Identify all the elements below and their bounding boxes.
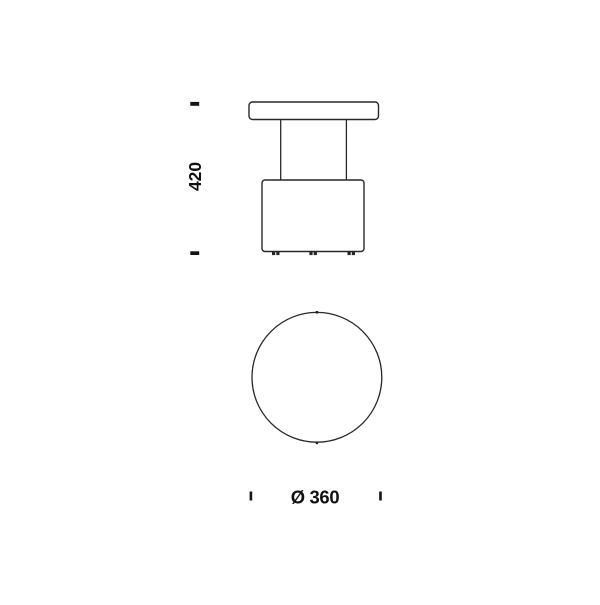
svg-text:Ø 360: Ø 360: [291, 486, 340, 507]
svg-text:420: 420: [185, 162, 205, 191]
